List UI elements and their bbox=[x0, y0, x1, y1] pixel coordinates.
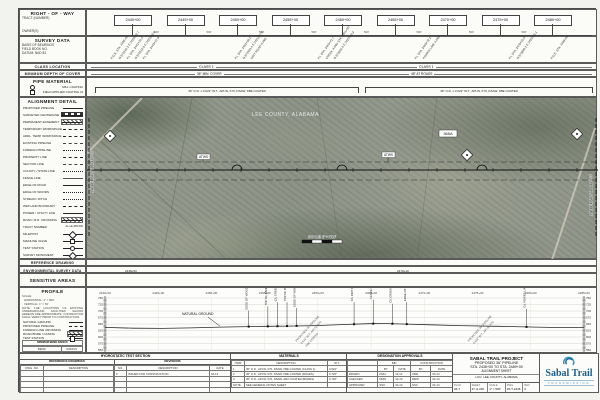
crossing-label: C/L DIRT ROAD bbox=[350, 288, 354, 301]
line-sample bbox=[68, 334, 82, 335]
sidebar-min-depth: MINIMUM DEPTH OF COVER bbox=[19, 70, 86, 77]
sidebar-class-location: CLASS LOCATION bbox=[19, 63, 86, 70]
sidebar-pipe-material: PIPE MATERIAL MILL COATING FIELD APPLIED… bbox=[19, 77, 86, 97]
materials-block: MATERIALS ITEMDESCRIPTIONW.T.136" O.D., … bbox=[230, 353, 348, 393]
elevation-label-right: 550 bbox=[586, 348, 591, 352]
crossing-jump-icon bbox=[477, 165, 487, 170]
sidebar-environmental: ENVIRONMENTAL SURVEY DATA bbox=[19, 266, 86, 273]
line-sample bbox=[63, 199, 83, 200]
profile-station-label: 2470+00 bbox=[418, 291, 430, 295]
sheet-type: ALIGNMENT SHEET bbox=[453, 369, 540, 373]
profile-station-label: 2440+00 bbox=[99, 291, 111, 295]
elevation-label-left: 575 bbox=[98, 342, 103, 346]
dashdot-line-sample-icon bbox=[63, 162, 83, 166]
square-line-sample-icon bbox=[63, 239, 83, 243]
class-extent-line bbox=[91, 67, 592, 68]
line-sample bbox=[63, 157, 83, 158]
sensitive-areas-strip bbox=[86, 273, 597, 287]
profile-graph: 7507507257257007006756756506506256256006… bbox=[87, 288, 598, 354]
station-tick bbox=[290, 24, 291, 35]
refdwgs-table-row bbox=[21, 392, 114, 393]
profile-legend-label: TEST STATION bbox=[23, 336, 44, 340]
tick-line-sample-icon bbox=[63, 211, 83, 215]
line-sample bbox=[62, 220, 82, 221]
station-label: 2480+00 bbox=[534, 15, 572, 26]
line-sample bbox=[63, 206, 83, 207]
section-title: ALIGNMENT DETAIL bbox=[20, 98, 85, 104]
crossing-jump-icon bbox=[337, 165, 347, 170]
line-sample bbox=[63, 108, 83, 109]
revisions-table: NO.DESCRIPTIONDATE0ISSUED FOR CONSTRUCTI… bbox=[114, 365, 231, 393]
scale-bar-segment bbox=[302, 240, 312, 243]
station-label: 2440+00 bbox=[114, 15, 152, 26]
line-sample bbox=[63, 136, 83, 137]
elevation-label-right: 700 bbox=[586, 309, 591, 313]
crossing-label: EDGE OF WOODS bbox=[245, 288, 249, 310]
interval-label: 500' bbox=[207, 30, 212, 34]
row-owner-label: OWNER(S) bbox=[20, 29, 85, 33]
section-title: MINIMUM DEPTH OF COVER bbox=[20, 71, 85, 76]
diamond-line-sample-icon bbox=[63, 232, 83, 236]
survey-monument-icon bbox=[571, 128, 582, 139]
profile-legend-list: NATURAL GROUNDPROPOSED PIPELINEFOREIGN L… bbox=[20, 320, 85, 340]
property-line bbox=[87, 128, 227, 260]
elevation-label-left: 675 bbox=[98, 316, 103, 320]
legend-item-label: FENCE LINE bbox=[23, 176, 41, 180]
depth-extent-line bbox=[91, 74, 592, 75]
line-sample bbox=[69, 338, 83, 339]
mill-coating-icon bbox=[23, 85, 43, 89]
station-label: 2470+00 bbox=[429, 15, 467, 26]
elevation-label-left: 625 bbox=[98, 329, 103, 333]
dot-line-sample-icon bbox=[63, 190, 83, 194]
survey-callout: P.O.E. STA. 2489+00 bbox=[550, 35, 570, 60]
elevation-label-left: 650 bbox=[98, 322, 103, 326]
legend-item: FENCE LINE bbox=[20, 174, 85, 181]
approvals-cell: SSC bbox=[378, 382, 394, 387]
thick-line-sample-icon bbox=[63, 106, 83, 110]
legend-item: SECTION LINE bbox=[20, 160, 85, 167]
sidebar-survey-data: SURVEY DATA BASIS OF BEARINGS FIELD BOOK… bbox=[19, 36, 86, 63]
crossing-label: FENCE LINE bbox=[369, 288, 373, 299]
approvals-cell: APPROVED bbox=[348, 382, 378, 387]
pipe-span-label: 36" O.D. x 0.622" W.T., API-5L X70, DSAW… bbox=[96, 89, 358, 93]
profile-station-label: 2450+00 bbox=[206, 291, 218, 295]
pipe-material-row-strip: 36" O.D. x 0.622" W.T., API-5L X70, DSAW… bbox=[86, 77, 597, 97]
station-tick bbox=[132, 24, 133, 35]
crossing-marker-icon bbox=[248, 326, 250, 328]
matchline-left-label: MATCHLINE STA. 2436+00 bbox=[90, 151, 94, 193]
title-cell: REV0 bbox=[523, 383, 540, 392]
property-line bbox=[162, 98, 192, 260]
materials-table-cell: 36" O.D., API-5L X70, DSAW, FBE COATED (… bbox=[245, 366, 328, 371]
line-sample bbox=[63, 185, 83, 186]
materials-table-row: 136" O.D., API-5L X70, DSAW, FBE COATED … bbox=[232, 366, 347, 371]
approvals-block: DESIGNATION APPROVALS BIDCONSTRUCTIONBYD… bbox=[346, 353, 454, 393]
crossing-label: EDGE OF WOODS bbox=[403, 288, 407, 301]
shortdash-line-sample-icon bbox=[63, 134, 83, 138]
elevation-label-right: 725 bbox=[586, 303, 591, 307]
crossing-marker-icon bbox=[353, 323, 355, 325]
elevation-label-left: 750 bbox=[98, 296, 103, 300]
elevation-label-left: 600 bbox=[98, 335, 103, 339]
title-cell-value: 0 bbox=[524, 387, 539, 391]
pipe-material-row: MILL COATING bbox=[62, 85, 83, 89]
class-value: CLASS 1 bbox=[197, 65, 216, 69]
aerial-map: 365AATWSATWSLEE COUNTY, ALABAMASCALE: 1"… bbox=[86, 97, 597, 259]
approvals-row: APPROVEDSSC10-13SSC04-14 bbox=[348, 382, 453, 387]
map-overlay: 365AATWSATWSLEE COUNTY, ALABAMASCALE: 1"… bbox=[87, 98, 598, 260]
profile-station-label: 2460+00 bbox=[312, 291, 324, 295]
title-block-cells: PLAN26-7SHEET27 of 240SCALE1" = 500'DWG2… bbox=[453, 382, 540, 392]
refdwgs-table-cell bbox=[44, 392, 114, 393]
line-sample bbox=[63, 255, 83, 256]
env-label: 2438+50 bbox=[125, 269, 137, 273]
natural-ground-leader bbox=[208, 317, 220, 326]
profile-plot: 7507507257257007006756756506506256256006… bbox=[86, 287, 597, 353]
refdwgs-table-cell bbox=[21, 392, 44, 393]
interval-label: 500' bbox=[522, 30, 527, 34]
line-sample bbox=[63, 178, 83, 179]
legend-item-label: SECTION LINE bbox=[23, 162, 44, 166]
crossing-marker-icon bbox=[296, 325, 298, 327]
legend-item: EDGE OF WOODS bbox=[20, 188, 85, 195]
row-tract-label: TRACT (NUMBER) bbox=[20, 16, 85, 20]
title-cell-value: 27 of 240 bbox=[472, 387, 487, 391]
crossing-label: C/L CREEK bbox=[388, 288, 392, 303]
location-line: LOC: LEE COUNTY, ALABAMA bbox=[453, 374, 540, 379]
station-label: 2465+00 bbox=[377, 15, 415, 26]
legend-item: POWER / UTILITY LINE bbox=[20, 209, 85, 216]
legend-item: TEMPORARY WORKSPACE bbox=[20, 125, 85, 132]
crossing-marker-icon bbox=[372, 323, 374, 325]
materials-table-cell bbox=[328, 382, 347, 387]
crossing-label: TOP OF BANK bbox=[283, 288, 287, 301]
station-label: 2475+00 bbox=[482, 15, 520, 26]
title-cell: DWG26-T-2436 bbox=[506, 383, 524, 392]
check-line-sample-icon bbox=[61, 112, 83, 117]
profile-station-label: 2475+00 bbox=[472, 291, 484, 295]
square-sample-icon bbox=[69, 336, 83, 340]
profile-station-label: 2445+00 bbox=[152, 291, 164, 295]
field-coating-icon bbox=[23, 90, 43, 94]
circle-line-sample-icon bbox=[63, 246, 83, 250]
title-cell: SHEET27 of 240 bbox=[471, 383, 489, 392]
monument-dot bbox=[109, 135, 111, 137]
scale-bar-segment bbox=[322, 240, 332, 243]
legend-item: ROAD / R.R. CROSSING bbox=[20, 216, 85, 223]
station-tick bbox=[500, 24, 501, 35]
legend-item: COUNTY / STATE LINE bbox=[20, 167, 85, 174]
scale-bar-segment bbox=[332, 240, 342, 243]
sidebar-reference-drawing: REFERENCE DRAWING bbox=[19, 259, 86, 266]
line-sample bbox=[63, 164, 83, 165]
station-tick bbox=[237, 24, 238, 35]
approvals-cell: 10-13 bbox=[394, 382, 411, 387]
legend-item: TEST STATION bbox=[20, 244, 85, 251]
crossing-label: C/L POWER LINE bbox=[523, 288, 527, 308]
title-block: SABAL TRAIL PROJECT PROPOSED 36" PIPELIN… bbox=[452, 353, 541, 393]
legend-item-label: TRACT NUMBER bbox=[23, 225, 47, 229]
tract-label-text: 365A bbox=[443, 131, 453, 136]
interval-label: 500' bbox=[312, 30, 317, 34]
line-sample bbox=[63, 213, 83, 214]
pipe-material-row: FIELD APPLIED COATING (SEE NOTES) bbox=[43, 90, 83, 94]
section-title: ENVIRONMENTAL SURVEY DATA bbox=[20, 267, 85, 273]
section-title: REFERENCE DRAWING bbox=[20, 260, 85, 265]
legend-item-label: EDGE OF WOODS bbox=[23, 190, 49, 194]
hydro-ref-rev-block: HYDROSTATIC TEST SECTION REFERENCE DRAWI… bbox=[19, 353, 232, 393]
dashdotdot-line-sample-icon bbox=[63, 169, 83, 173]
line-sample bbox=[69, 326, 83, 327]
env-label: 2470+10 bbox=[397, 269, 409, 273]
legend-item-label: ROAD / R.R. CROSSING bbox=[23, 218, 57, 222]
text-line-sample-icon: AL-LE-365.000 bbox=[63, 225, 83, 229]
section-title: SENSITIVE AREAS bbox=[20, 274, 85, 283]
legend-item: SURVEY MONUMENT bbox=[20, 251, 85, 258]
hatch-line-sample-icon bbox=[61, 217, 83, 223]
legend-item: PERMANENT EASEMENT bbox=[20, 118, 85, 125]
line-sample bbox=[63, 143, 83, 144]
legend-item-label: PROPOSED PIPELINE bbox=[23, 106, 54, 110]
line-sample bbox=[63, 241, 83, 242]
legend-item-label: MILEPOST bbox=[23, 232, 38, 236]
legend-item-label: EDGE OF ROAD bbox=[23, 183, 46, 187]
station-tick bbox=[395, 24, 396, 35]
line-sample bbox=[63, 150, 83, 151]
crossing-marker-icon bbox=[526, 326, 528, 328]
station-label: 2460+00 bbox=[324, 15, 362, 26]
legend-item: MAINLINE VALVE bbox=[20, 237, 85, 244]
natural-ground-label: NATURAL GROUND bbox=[182, 312, 214, 316]
section-title: CLASS LOCATION bbox=[20, 64, 85, 69]
logo-block: Sabal Trail TRANSMISSION bbox=[539, 353, 599, 393]
legend-item-label: MAINLINE VALVE bbox=[23, 239, 47, 243]
materials-table-cell: SEE GENERAL NOTES SHEET bbox=[245, 382, 328, 387]
title-cell: PLAN26-7 bbox=[453, 383, 471, 392]
map-scale-text: SCALE: 1" = 500' bbox=[308, 235, 336, 239]
station-tick bbox=[552, 24, 553, 35]
logo-name: Sabal Trail bbox=[540, 369, 598, 379]
elevation-label-right: 600 bbox=[586, 335, 591, 339]
interval-label: 500' bbox=[417, 30, 422, 34]
elevation-label-left: 550 bbox=[98, 348, 103, 352]
line-sample bbox=[63, 171, 83, 172]
approvals-cell: 04-14 bbox=[431, 382, 453, 387]
survey-row: DATUM: NAD 83 bbox=[20, 51, 85, 55]
property-line bbox=[417, 98, 437, 260]
scale-bar-segment bbox=[312, 240, 322, 243]
xline-line-sample-icon bbox=[63, 176, 83, 180]
pipe-span-bracket: 36" O.D. x 0.622" W.T., API-5L X70, DSAW… bbox=[95, 87, 359, 93]
line-sample bbox=[63, 248, 83, 249]
reference-drawings-table: DWG. NO.DESCRIPTION bbox=[20, 365, 114, 393]
legend-item-label: EXISTING PIPELINE bbox=[23, 141, 51, 145]
elevation-label-left: 700 bbox=[98, 309, 103, 313]
solid-line-sample-icon bbox=[63, 183, 83, 187]
map-scale-bar: SCALE: 1" = 500' bbox=[302, 235, 342, 243]
legend-item-label: STREAM / DITCH bbox=[23, 197, 47, 201]
hatch-line-sample-icon bbox=[61, 119, 83, 125]
approvals-cell: SSC bbox=[411, 382, 431, 387]
title-cell: SCALE1" = 500' bbox=[488, 383, 506, 392]
county-label: LEE COUNTY, ALABAMA bbox=[252, 112, 319, 118]
survey-callouts-row: P.O.B. STA. 2436+00N 872341.2 E 2419856.… bbox=[86, 36, 597, 63]
legend-item-label: ADDL. TEMP. WORKSPACE bbox=[23, 134, 62, 138]
legend-item: PROPERTY LINE bbox=[20, 153, 85, 160]
pipe-span-bracket: 36" O.D. x 0.622" W.T., API-5L X70, DSAW… bbox=[365, 87, 593, 93]
profile-station-label: 2480+00 bbox=[525, 291, 537, 295]
dot-line-sample-icon bbox=[63, 197, 83, 201]
natural-ground-line bbox=[105, 324, 584, 329]
legend-item-label: WETLAND BOUNDARY bbox=[23, 204, 55, 208]
diamond-line-sample-icon bbox=[63, 253, 83, 257]
workspace-tag-text: ATWS bbox=[199, 155, 208, 159]
class-value: CLASS 1 bbox=[417, 65, 436, 69]
depth-value: 36" MIN. COVER bbox=[195, 72, 224, 76]
station-tick bbox=[185, 24, 186, 35]
bottom-strip: HYDROSTATIC TEST SECTION REFERENCE DRAWI… bbox=[19, 353, 597, 393]
materials-table-row: 236" O.D., API-5L X70, DSAW, FBE COATED … bbox=[232, 371, 347, 376]
reference-drawing-strip bbox=[86, 259, 597, 266]
survey-monument-icon bbox=[104, 130, 115, 141]
station-tick bbox=[447, 24, 448, 35]
sabal-trail-logo-icon bbox=[540, 355, 598, 369]
depth-of-cover-row: 36" MIN. COVER48" AT ROADS bbox=[86, 70, 597, 77]
legend-item: EDGE OF ROAD bbox=[20, 181, 85, 188]
crossing-marker-icon bbox=[406, 323, 408, 325]
legend-item: MILEPOST bbox=[20, 230, 85, 237]
station-label: 2455+00 bbox=[272, 15, 310, 26]
monument-dot bbox=[576, 133, 578, 135]
loc-label: LOC: bbox=[475, 375, 482, 379]
line-sample bbox=[63, 192, 83, 193]
crossing-label: EDGE OF WOODS bbox=[293, 288, 297, 307]
sidebar-profile: PROFILE SCALE: HORIZONTAL: 1" = 500' VER… bbox=[19, 287, 86, 353]
title-cell-value: 1" = 500' bbox=[489, 387, 504, 391]
line-sample bbox=[62, 115, 82, 116]
tract-label-tag: 365A bbox=[439, 130, 457, 137]
revisions-table-cell bbox=[115, 392, 127, 393]
legend-item-label: PERMANENT EASEMENT bbox=[23, 120, 59, 124]
dashdotdot-line-sample-icon bbox=[63, 148, 83, 152]
alignment-sheet: RIGHT - OF - WAY TRACT (NUMBER) OWNER(S)… bbox=[18, 8, 596, 392]
elevation-label-right: 750 bbox=[586, 296, 591, 300]
legend-item: EXISTING PIPELINE bbox=[20, 139, 85, 146]
materials-table-row: NOTESEE GENERAL NOTES SHEET bbox=[232, 382, 347, 387]
legend-item-label: TEST STATION bbox=[23, 246, 44, 250]
elevation-label-right: 675 bbox=[586, 316, 591, 320]
legend-item: ADDL. TEMP. WORKSPACE bbox=[20, 132, 85, 139]
legend-item: STREAM / DITCH bbox=[20, 195, 85, 202]
class-location-row: CLASS 1CLASS 1 bbox=[86, 63, 597, 70]
dash-line-sample-icon bbox=[63, 155, 83, 159]
line-sample bbox=[63, 234, 83, 235]
legend-item-label: TEMPORARY WORKSPACE bbox=[23, 127, 62, 131]
revisions-table-row bbox=[115, 392, 231, 393]
approvals-table: BIDCONSTRUCTIONBYDATEBYDATEDRAWNKMH10-13… bbox=[347, 360, 453, 388]
legend-item: WETLAND BOUNDARY bbox=[20, 202, 85, 209]
crossing-label: TOP OF BANK bbox=[264, 288, 268, 305]
station-label: 2450+00 bbox=[219, 15, 257, 26]
legend-item-label: SURVEYED CENTERLINE bbox=[23, 113, 59, 117]
crossing-marker-icon bbox=[267, 325, 269, 327]
county-state: LEE COUNTY, ALABAMA bbox=[483, 375, 517, 379]
legend-item-label: PROPERTY LINE bbox=[23, 155, 47, 159]
shortdash-line-sample-icon bbox=[63, 204, 83, 208]
line-sample bbox=[63, 129, 83, 130]
legend-item-label: SURVEY MONUMENT bbox=[23, 253, 54, 257]
legend-item: PROPOSED PIPELINE bbox=[20, 104, 85, 111]
matchline-right-label: MATCHLINE STA. 2489+00 bbox=[589, 174, 593, 216]
legend-item-label: POWER / UTILITY LINE bbox=[23, 211, 55, 215]
road-line bbox=[87, 98, 142, 153]
elevation-label-right: 650 bbox=[586, 322, 591, 326]
revisions-table-cell bbox=[210, 392, 231, 393]
legend-item: SURVEYED CENTERLINE bbox=[20, 111, 85, 118]
materials-table-cell: NOTE bbox=[232, 382, 245, 387]
line-sample bbox=[69, 322, 83, 323]
revisions-table-cell bbox=[127, 392, 210, 393]
elevation-label-right: 625 bbox=[586, 329, 591, 333]
elevation-label-left: 725 bbox=[98, 303, 103, 307]
crossing-marker-icon bbox=[286, 325, 288, 327]
dash-line-sample-icon bbox=[63, 127, 83, 131]
legend-item-label: FOREIGN PIPELINE bbox=[23, 148, 51, 152]
interval-label: 500' bbox=[469, 30, 474, 34]
interval-label: 500' bbox=[364, 30, 369, 34]
crossing-jump-icon bbox=[232, 165, 242, 170]
sidebar-alignment-detail: ALIGNMENT DETAIL PROPOSED PIPELINESURVEY… bbox=[19, 97, 86, 259]
environmental-strip: 2438+502470+10 bbox=[86, 266, 597, 273]
sidebar-right-of-way: RIGHT - OF - WAY TRACT (NUMBER) OWNER(S) bbox=[19, 9, 86, 36]
materials-table-row: 336" O.D., API-5L X70, DSAW, ARO COATED … bbox=[232, 377, 347, 382]
alignment-legend-list: PROPOSED PIPELINESURVEYED CENTERLINEPERM… bbox=[20, 104, 85, 258]
profile-station-label: 2485+00 bbox=[578, 291, 590, 295]
legend-item-label: COUNTY / STATE LINE bbox=[23, 169, 55, 173]
logo-subtitle: TRANSMISSION bbox=[544, 380, 594, 386]
line-sample bbox=[62, 122, 82, 123]
depth-value: 48" AT ROADS bbox=[409, 72, 434, 76]
pipe-span-label: 36" O.D. x 0.622" W.T., API-5L X70, DSAW… bbox=[366, 89, 592, 93]
crossing-marker-icon bbox=[276, 325, 278, 327]
title-cell-value: 26-7 bbox=[454, 387, 469, 391]
dashdot-line-sample-icon bbox=[63, 141, 83, 145]
station-label: 2445+00 bbox=[167, 15, 205, 26]
materials-table: ITEMDESCRIPTIONW.T.136" O.D., API-5L X70… bbox=[231, 360, 347, 388]
monument-dot bbox=[466, 154, 468, 156]
title-cell-value: 26-T-2436 bbox=[507, 387, 522, 391]
legend-item: TRACT NUMBERAL-LE-365.000 bbox=[20, 223, 85, 230]
elevation-label-right: 575 bbox=[586, 342, 591, 346]
survey-monument-icon bbox=[461, 149, 472, 160]
crossing-marker-icon bbox=[391, 323, 393, 325]
crossing-label: C/L CREEK bbox=[273, 288, 277, 301]
profile-note: NOTE: THE LOCATIONS OF EXISTING UNDERGRO… bbox=[20, 306, 85, 320]
sidebar-sensitive-areas: SENSITIVE AREAS bbox=[19, 273, 86, 287]
legend-item: FOREIGN PIPELINE bbox=[20, 146, 85, 153]
workspace-tag-text: ATWS bbox=[384, 153, 393, 157]
